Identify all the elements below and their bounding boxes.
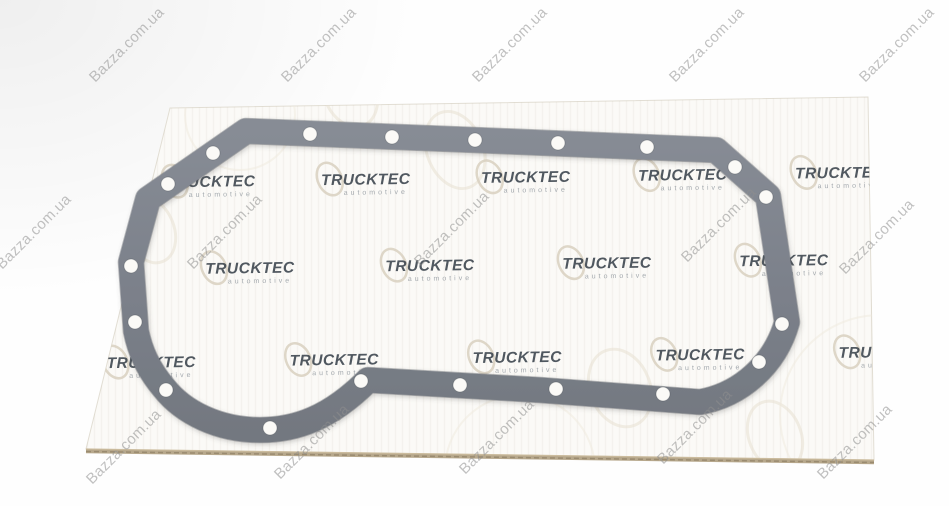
brand-tagline-text: automotive [661,185,725,193]
bolt-hole [354,374,368,388]
brand-tagline-text: automotive [408,275,472,283]
brand-tagline-text: automotive [228,278,292,286]
brand-tagline-text: automotive [678,364,742,372]
brand-tagline-text: automotive [585,273,649,281]
bolt-hole [453,378,467,392]
brand-name-text: TRUCKTEC [562,255,652,273]
bolt-hole [263,421,277,435]
brand-name-text: TRUCKTEC [481,169,571,187]
bolt-hole [656,387,670,401]
bolt-hole [640,140,654,154]
gasket-photo-scene: TRUCKTECautomotiveTRUCKTECautomotiveTRUC… [0,0,949,506]
brand-tagline-text: automotive [495,367,559,375]
brand-name-text: TRUCKTEC [205,260,295,278]
brand-name-text: TRUCKTEC [472,349,562,367]
bolt-hole [775,317,789,331]
bolt-hole [161,177,175,191]
brand-name-text: TRUCKTEC [321,171,411,189]
brand-tagline-text: automotive [344,189,408,197]
brand-name-text: TRUCKTEC [655,346,745,364]
bolt-hole [128,315,142,329]
brand-tagline-text: automotive [504,187,568,195]
brand-name-text: TRUCKTEC [638,166,728,184]
bolt-hole [385,130,399,144]
brand-tagline-text: automotive [189,191,253,199]
brand-name-text: TRUCKTEC [290,351,380,369]
bolt-hole [159,383,173,397]
product-photo: TRUCKTECautomotiveTRUCKTECautomotiveTRUC… [0,0,949,506]
bolt-hole [728,160,742,174]
bolt-hole [549,382,563,396]
bolt-hole [752,355,766,369]
bolt-hole [551,136,565,150]
bolt-hole [759,190,773,204]
bolt-hole [303,127,317,141]
bolt-hole [206,146,220,160]
bolt-hole [124,259,138,273]
bolt-hole [468,133,482,147]
